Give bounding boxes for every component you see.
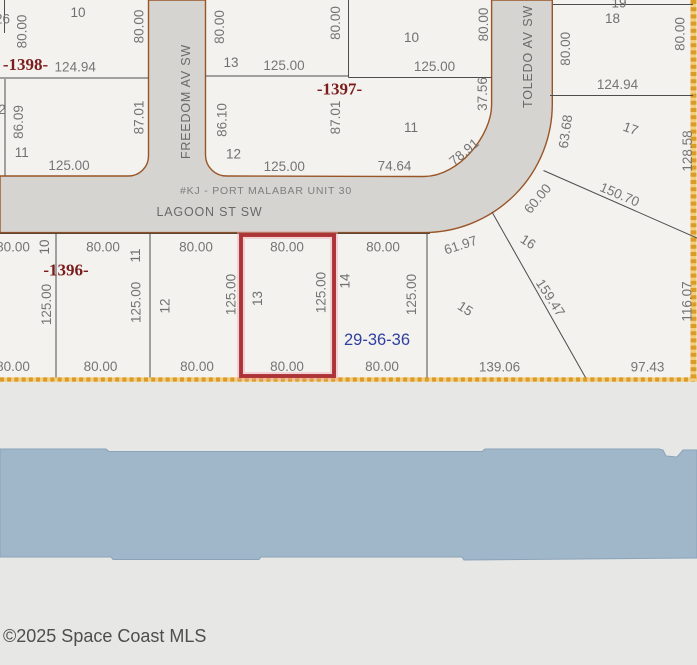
svg-text:11: 11 — [15, 145, 29, 160]
svg-text:80.00: 80.00 — [212, 10, 227, 44]
svg-text:86.09: 86.09 — [11, 105, 26, 139]
svg-text:12: 12 — [226, 147, 241, 162]
svg-text:26: 26 — [0, 12, 10, 27]
svg-text:125.00: 125.00 — [264, 159, 305, 174]
svg-text:125.00: 125.00 — [48, 158, 89, 173]
svg-text:80.00: 80.00 — [558, 32, 573, 66]
svg-text:86.10: 86.10 — [215, 103, 230, 137]
svg-text:10: 10 — [404, 30, 419, 45]
svg-text:12: 12 — [158, 298, 173, 313]
svg-text:80.00: 80.00 — [86, 240, 120, 255]
svg-text:125.00: 125.00 — [314, 272, 329, 313]
svg-text:10: 10 — [37, 239, 52, 254]
svg-text:87.01: 87.01 — [132, 101, 147, 135]
svg-text:87.01: 87.01 — [328, 101, 343, 135]
svg-text:80.00: 80.00 — [0, 359, 30, 374]
svg-text:18: 18 — [605, 11, 620, 26]
svg-text:80.00: 80.00 — [366, 240, 400, 255]
svg-text:128.58: 128.58 — [680, 130, 695, 171]
svg-text:13: 13 — [223, 55, 238, 70]
svg-text:#KJ - PORT MALABAR UNIT 30: #KJ - PORT MALABAR UNIT 30 — [180, 185, 352, 197]
svg-text:124.94: 124.94 — [55, 60, 97, 75]
svg-text:-1398-: -1398- — [3, 55, 49, 74]
svg-text:80.00: 80.00 — [270, 359, 304, 374]
svg-text:-1397-: -1397- — [317, 80, 363, 99]
svg-text:LAGOON ST SW: LAGOON ST SW — [157, 205, 263, 219]
svg-text:80.00: 80.00 — [15, 15, 30, 49]
svg-text:80.00: 80.00 — [84, 359, 118, 374]
svg-text:80.00: 80.00 — [0, 240, 30, 255]
svg-text:97.43: 97.43 — [631, 360, 665, 375]
svg-text:19: 19 — [611, 0, 626, 11]
svg-text:FREEDOM AV SW: FREEDOM AV SW — [179, 44, 193, 159]
svg-text:13: 13 — [250, 291, 265, 306]
svg-text:-1396-: -1396- — [43, 261, 89, 280]
svg-text:80.00: 80.00 — [179, 240, 213, 255]
svg-text:80.00: 80.00 — [270, 240, 304, 255]
svg-text:14: 14 — [338, 273, 353, 289]
svg-text:125.00: 125.00 — [263, 58, 304, 73]
svg-text:125.00: 125.00 — [39, 284, 54, 325]
svg-text:2: 2 — [0, 102, 6, 117]
svg-text:125.00: 125.00 — [414, 59, 455, 74]
svg-text:125.00: 125.00 — [404, 274, 419, 315]
svg-text:124.94: 124.94 — [597, 77, 639, 92]
svg-text:80.00: 80.00 — [673, 17, 688, 51]
svg-text:80.00: 80.00 — [132, 10, 147, 44]
svg-text:TOLEDO AV SW: TOLEDO AV SW — [521, 5, 535, 108]
svg-text:139.06: 139.06 — [479, 360, 520, 375]
svg-text:11: 11 — [404, 120, 418, 135]
svg-text:80.00: 80.00 — [476, 8, 491, 42]
svg-text:11: 11 — [128, 248, 143, 262]
svg-text:80.00: 80.00 — [180, 359, 214, 374]
svg-text:10: 10 — [70, 5, 85, 20]
svg-text:37.56: 37.56 — [475, 77, 490, 111]
svg-text:©2025 Space Coast MLS: ©2025 Space Coast MLS — [3, 626, 206, 646]
svg-text:125.00: 125.00 — [129, 282, 144, 323]
svg-text:29-36-36: 29-36-36 — [344, 331, 410, 349]
svg-text:80.00: 80.00 — [365, 359, 399, 374]
svg-text:80.00: 80.00 — [328, 6, 343, 40]
svg-text:74.64: 74.64 — [378, 159, 412, 174]
svg-text:116.07: 116.07 — [680, 281, 695, 321]
svg-text:125.00: 125.00 — [224, 274, 239, 315]
